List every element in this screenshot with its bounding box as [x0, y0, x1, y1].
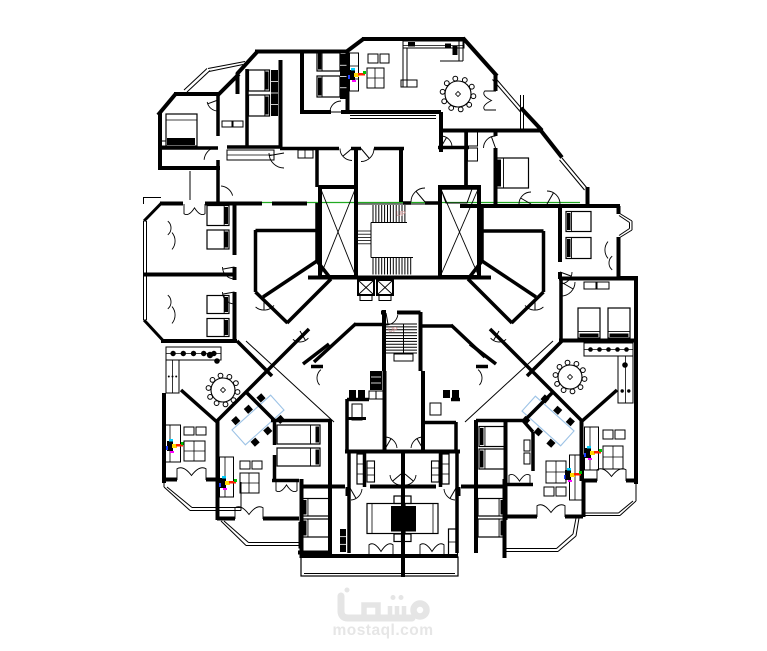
svg-text:UP: UP: [388, 327, 398, 334]
svg-text:mostaql.com: mostaql.com: [332, 622, 433, 639]
svg-text:UP: UP: [396, 211, 406, 218]
